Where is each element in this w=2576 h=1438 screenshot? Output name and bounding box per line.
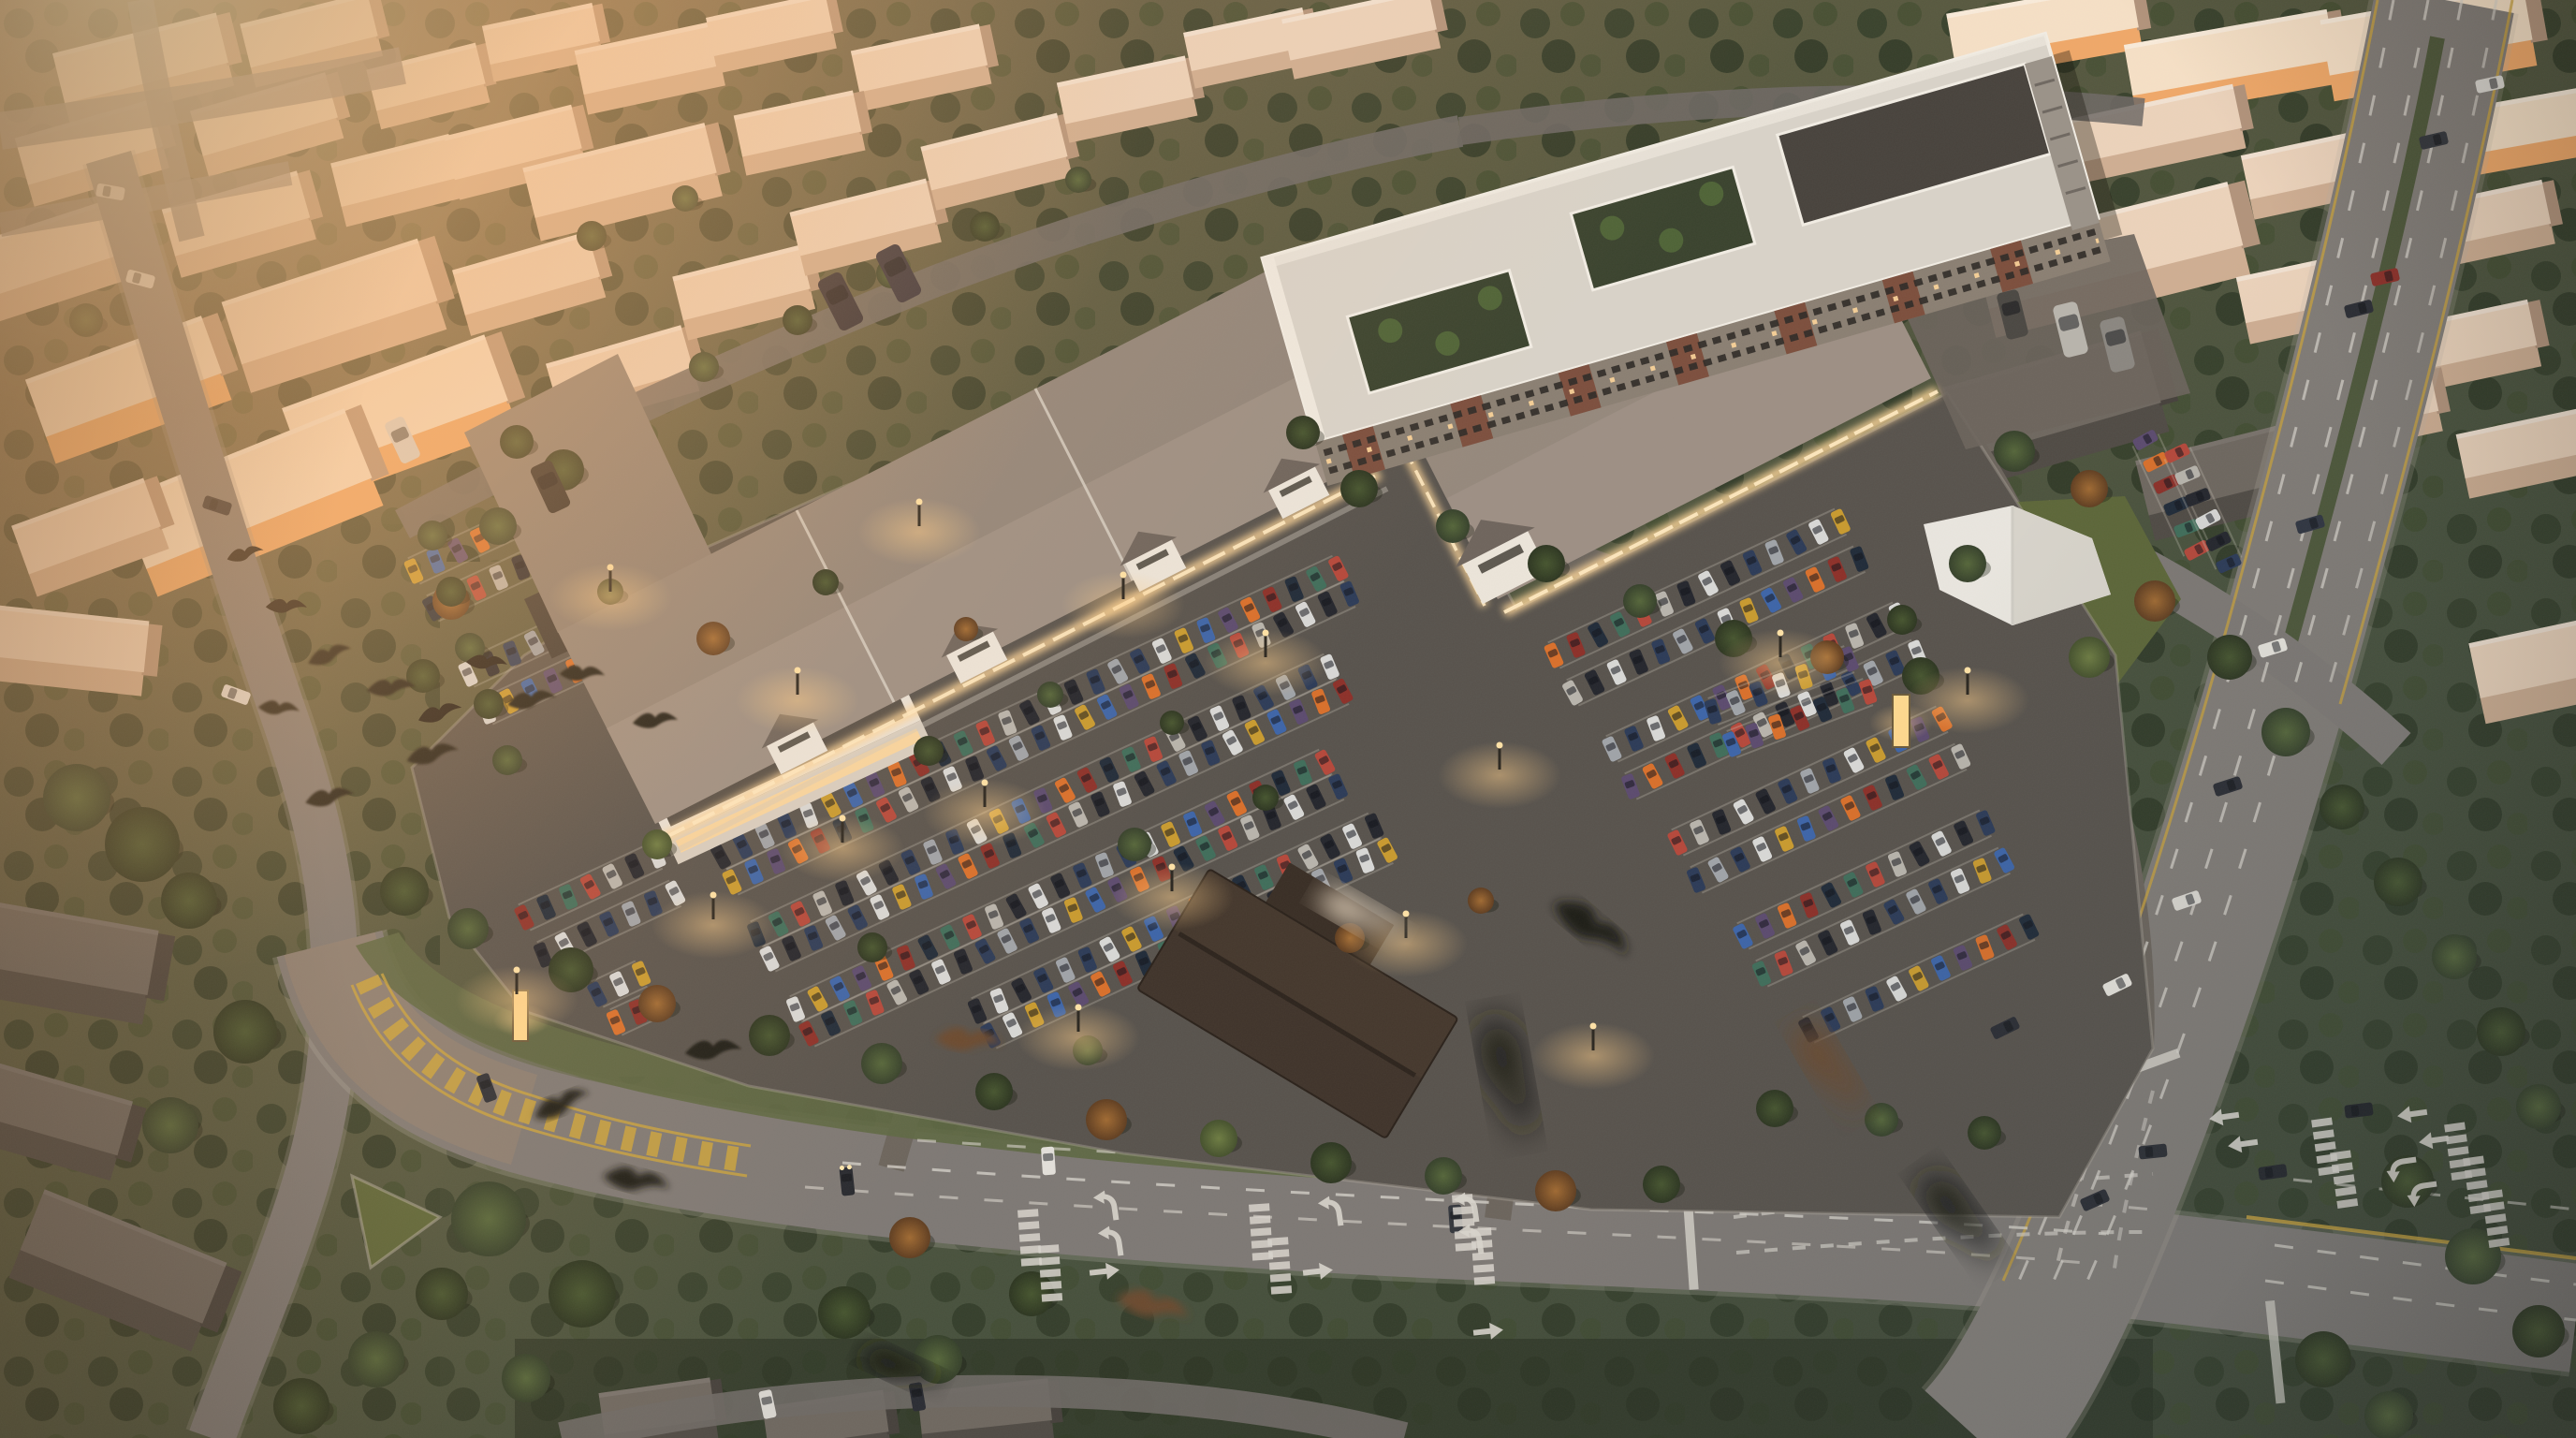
scene-canvas bbox=[0, 0, 2576, 1438]
aerial-render-image bbox=[0, 0, 2576, 1438]
film-grain-overlay bbox=[0, 0, 2576, 1438]
